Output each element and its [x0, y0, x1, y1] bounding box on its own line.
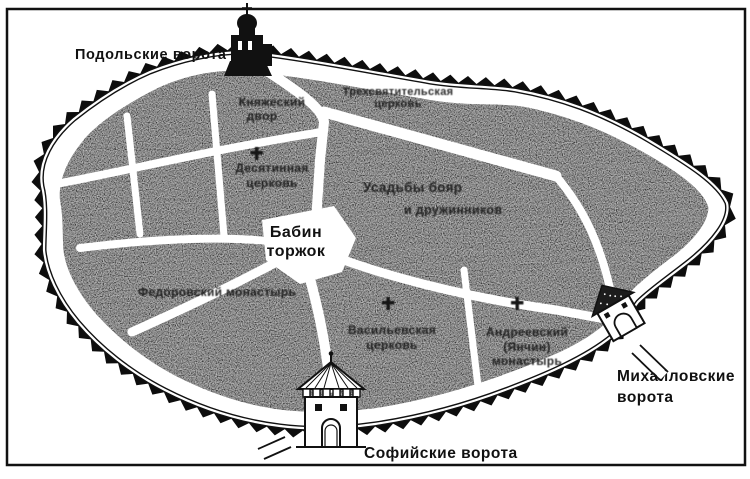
podolsk-gate-label: Подольские ворота — [75, 47, 227, 63]
district-label: Васильевская — [348, 323, 436, 337]
district-label: Усадьбы бояр — [363, 180, 462, 195]
babyn-torzhok-label: торжок — [267, 243, 326, 260]
district-label: Княжеский — [239, 95, 306, 109]
district-label: двор — [247, 109, 278, 123]
city-plan-svg: Княжеский двор Десятинная церковь Трехсв… — [0, 0, 750, 479]
babyn-torzhok-label: Бабин — [270, 224, 322, 241]
mikhailov-gate-label: Михайловские — [617, 368, 735, 385]
district-label: Десятинная — [235, 161, 308, 175]
district-label: и дружинников — [404, 203, 502, 217]
district-label: Трехсвятительская — [343, 86, 454, 98]
mikhailov-gate-label: ворота — [617, 389, 674, 406]
district-label: церковь — [366, 338, 417, 352]
district-label: церковь — [374, 98, 421, 110]
district-label: (Янчин) — [503, 340, 551, 354]
district-label: церковь — [246, 176, 297, 190]
podolsk-gate-tower-icon — [224, 3, 272, 76]
sofia-gate-label: Софийские ворота — [364, 445, 518, 462]
district-label: Федоровский монастырь — [138, 285, 296, 299]
map-figure: Княжеский двор Десятинная церковь Трехсв… — [0, 0, 750, 479]
district-label: монастырь — [492, 354, 562, 368]
district-label: Андреевский — [486, 325, 568, 339]
